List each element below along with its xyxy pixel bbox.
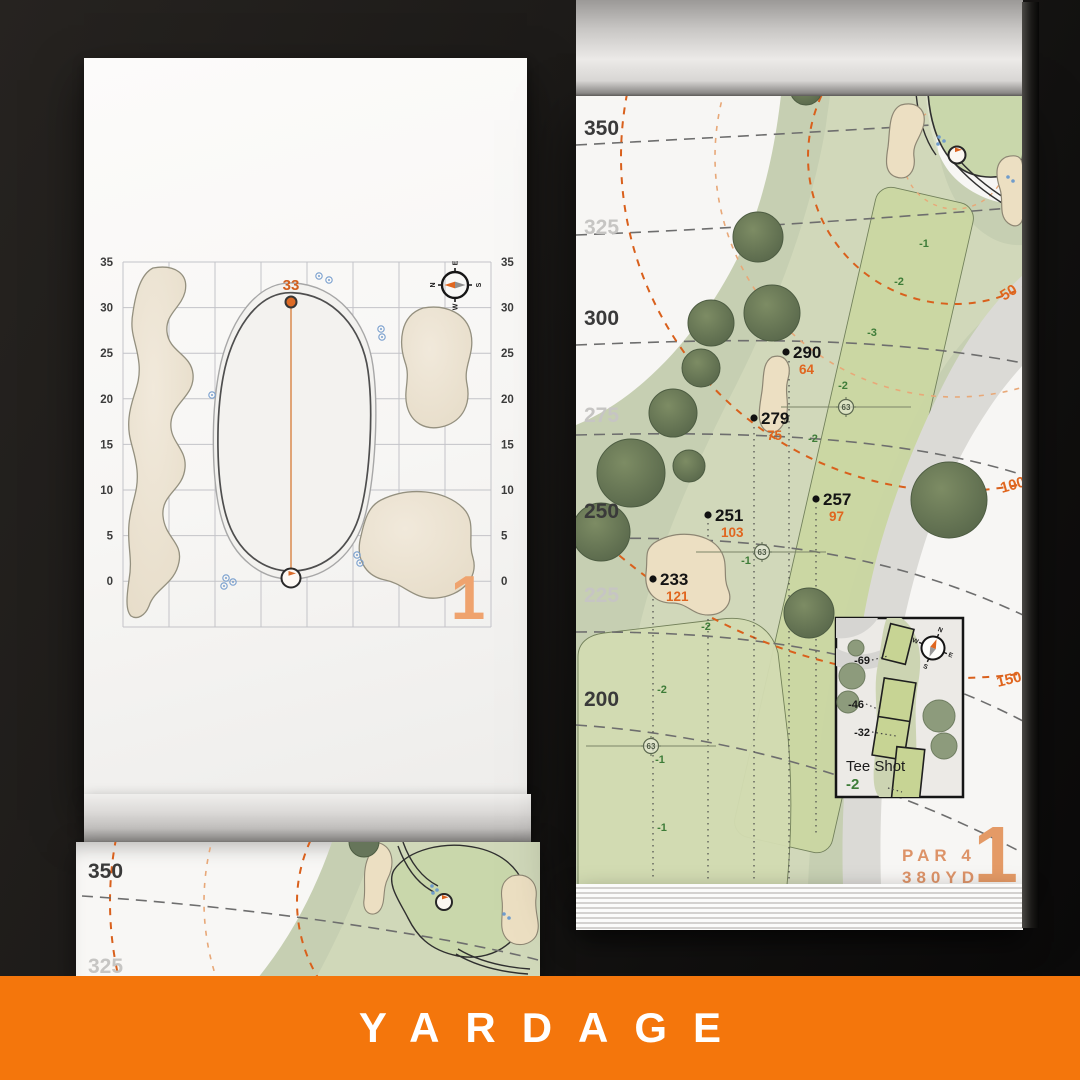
- svg-text:5: 5: [501, 531, 508, 543]
- distance-band-350: 350: [88, 860, 123, 883]
- tee-shot-title: Tee Shot: [846, 758, 906, 775]
- banner-title: YARDAGE: [333, 1004, 747, 1052]
- svg-text:0: 0: [107, 576, 113, 588]
- pin-distance-label: 33: [283, 277, 300, 294]
- svg-text:20: 20: [501, 394, 514, 406]
- svg-text:-1: -1: [919, 238, 929, 250]
- svg-text:15: 15: [501, 439, 514, 451]
- fairway-chunk: [578, 618, 791, 885]
- page-curl-top: [576, 0, 1023, 96]
- svg-text:250: 250: [584, 500, 619, 523]
- arc-label-100: 100: [998, 474, 1023, 497]
- sprinkler-63: 63: [647, 742, 656, 751]
- svg-text:-3: -3: [867, 327, 877, 339]
- svg-text:25: 25: [100, 348, 113, 360]
- tee-shot-slope: -2: [846, 776, 859, 793]
- distance-band-325: 325: [88, 955, 123, 978]
- svg-text:5: 5: [107, 531, 114, 543]
- tee-distance--69: -69: [854, 655, 870, 667]
- svg-text:350: 350: [584, 117, 619, 140]
- svg-text:35: 35: [100, 257, 113, 269]
- flag-marker-icon: [282, 569, 301, 588]
- hole-map: 50 100 150: [576, 95, 1023, 885]
- putting-green-outline: [213, 283, 375, 579]
- tee-shot-inset: -69 -46 -32 Tee Shot -2 N E S W: [836, 613, 963, 803]
- compass-n: N: [430, 282, 437, 287]
- sprinkler-63: 63: [758, 548, 767, 557]
- svg-text:-2: -2: [657, 684, 667, 696]
- svg-text:257: 257: [823, 490, 851, 509]
- arc-label-150: 150: [995, 668, 1023, 691]
- compass-icon: N E S W: [430, 260, 483, 310]
- svg-text:30: 30: [501, 303, 514, 315]
- svg-text:-1: -1: [741, 555, 751, 567]
- svg-text:-2: -2: [838, 380, 848, 392]
- page-stack-edge: [576, 884, 1023, 930]
- svg-text:75: 75: [767, 428, 783, 443]
- hole-number: 1: [451, 564, 485, 633]
- svg-text:121: 121: [666, 589, 689, 604]
- svg-text:275: 275: [584, 404, 619, 427]
- svg-text:25: 25: [501, 348, 514, 360]
- hole-number: 1: [974, 810, 1019, 885]
- yardage-banner: YARDAGE: [0, 976, 1080, 1080]
- svg-text:103: 103: [721, 525, 744, 540]
- svg-text:279: 279: [761, 409, 789, 428]
- green-detail-page: 33: [84, 58, 527, 798]
- svg-text:290: 290: [793, 343, 821, 362]
- svg-text:325: 325: [584, 216, 619, 239]
- bottom-partial-hole-page: 350 325: [76, 842, 540, 978]
- page-curl: [84, 794, 531, 843]
- svg-text:97: 97: [829, 509, 844, 524]
- flag-marker-icon: [436, 894, 452, 910]
- svg-text:64: 64: [799, 362, 815, 377]
- page-edge-shadow: [1022, 2, 1039, 928]
- compass-s: S: [476, 282, 483, 287]
- svg-text:-1: -1: [655, 754, 665, 766]
- svg-text:0: 0: [501, 576, 507, 588]
- bottom-partial-map: 350 325: [76, 842, 540, 978]
- svg-text:10: 10: [501, 485, 514, 497]
- par-label: PAR 4: [902, 846, 976, 865]
- hole-page-book: 50 100 150: [576, 0, 1039, 932]
- hole-map-page: 50 100 150: [576, 95, 1023, 885]
- svg-text:-2: -2: [808, 433, 818, 445]
- yardage-book-mockup: 33: [0, 0, 1080, 1080]
- sprinkler-63: 63: [842, 403, 851, 412]
- svg-text:30: 30: [100, 303, 113, 315]
- tee-distance--32: -32: [854, 727, 870, 739]
- svg-text:200: 200: [584, 688, 619, 711]
- green-detail-map: 33: [92, 250, 523, 640]
- compass-w: W: [453, 303, 460, 310]
- svg-text:233: 233: [660, 570, 688, 589]
- axis-labels-right: 35 30 25 20 15 10 5 0: [501, 257, 514, 588]
- compass-e: E: [453, 260, 460, 265]
- tee-distance--46: -46: [848, 699, 864, 711]
- svg-text:300: 300: [584, 307, 619, 330]
- flag-marker-icon: [949, 147, 966, 164]
- svg-text:10: 10: [100, 485, 113, 497]
- pin-position-dot: [286, 297, 297, 308]
- svg-text:225: 225: [584, 584, 619, 607]
- total-yardage-label: 380YD: [902, 868, 979, 885]
- svg-text:15: 15: [100, 439, 113, 451]
- svg-text:-2: -2: [701, 621, 711, 633]
- svg-text:251: 251: [715, 506, 743, 525]
- svg-text:-1: -1: [657, 822, 667, 834]
- axis-labels-left: 35 30 25 20 15 10 5 0: [100, 257, 113, 588]
- svg-text:35: 35: [501, 257, 514, 269]
- svg-text:20: 20: [100, 394, 113, 406]
- svg-text:-2: -2: [894, 276, 904, 288]
